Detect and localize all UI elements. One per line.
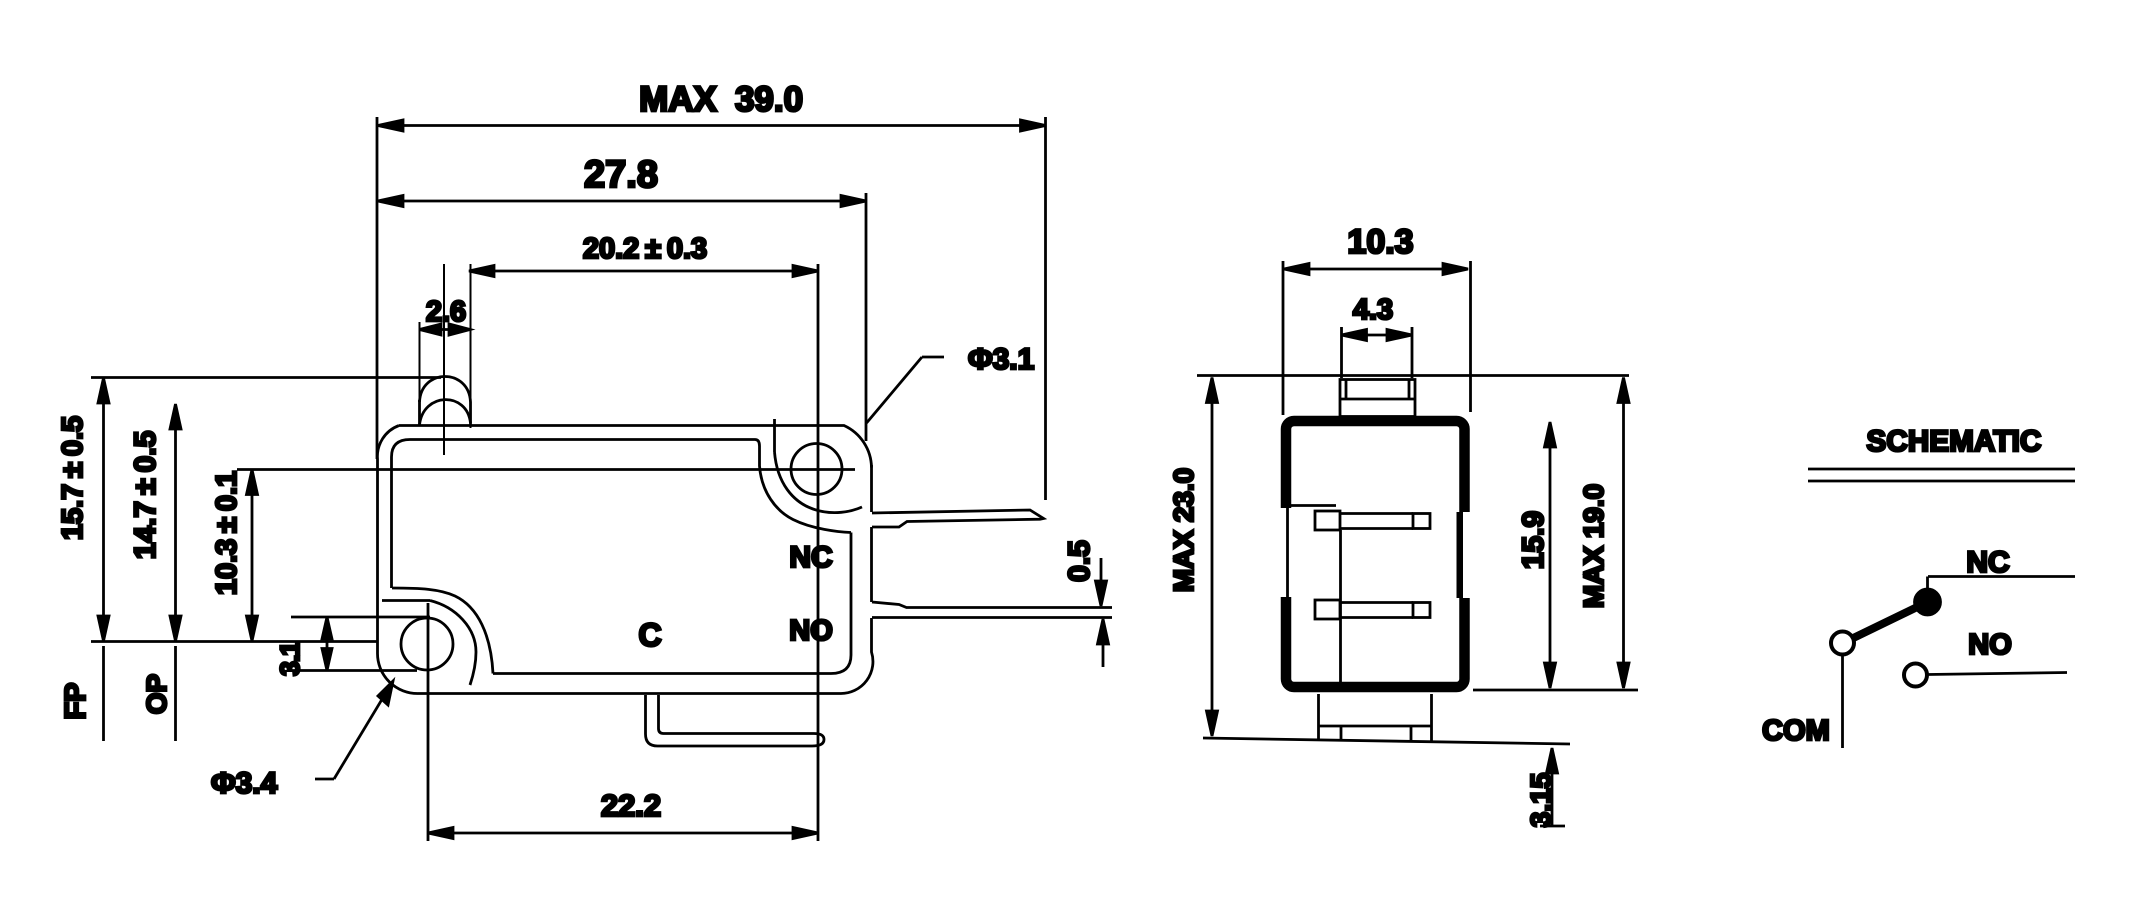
svg-text:4.3: 4.3 — [1353, 294, 1393, 326]
svg-text:20.2 ± 0.3: 20.2 ± 0.3 — [583, 233, 707, 265]
svg-text:10.3: 10.3 — [1347, 223, 1413, 261]
svg-text:NC: NC — [789, 541, 832, 574]
svg-text:OP: OP — [141, 674, 172, 714]
svg-text:SCHEMATIC: SCHEMATIC — [1867, 425, 2042, 458]
svg-text:NO: NO — [789, 615, 833, 647]
svg-text:C: C — [638, 617, 661, 653]
svg-text:15.9: 15.9 — [1517, 511, 1550, 569]
svg-text:14.7 ± 0.5: 14.7 ± 0.5 — [129, 431, 162, 560]
svg-text:NC: NC — [1966, 546, 2009, 579]
svg-text:Φ3.1: Φ3.1 — [968, 343, 1034, 376]
svg-text:27.8: 27.8 — [584, 154, 658, 196]
svg-text:NO: NO — [1968, 629, 2012, 661]
svg-text:COM: COM — [1762, 715, 1830, 747]
svg-text:MAX: MAX — [639, 80, 717, 119]
svg-text:0.5: 0.5 — [1063, 540, 1096, 582]
svg-text:MAX 19.0: MAX 19.0 — [1578, 484, 1609, 609]
svg-text:2.6: 2.6 — [426, 296, 466, 328]
svg-text:3.1: 3.1 — [275, 642, 305, 676]
svg-text:22.2: 22.2 — [601, 788, 661, 823]
svg-text:MAX 23.0: MAX 23.0 — [1168, 468, 1199, 593]
svg-text:15.7 ± 0.5: 15.7 ± 0.5 — [57, 416, 89, 540]
svg-text:39.0: 39.0 — [735, 80, 803, 119]
svg-text:FP: FP — [60, 682, 92, 719]
svg-text:10.3 ± 0.1: 10.3 ± 0.1 — [211, 471, 243, 595]
svg-text:3.15: 3.15 — [1525, 773, 1556, 828]
svg-text:Φ3.4: Φ3.4 — [211, 767, 278, 800]
